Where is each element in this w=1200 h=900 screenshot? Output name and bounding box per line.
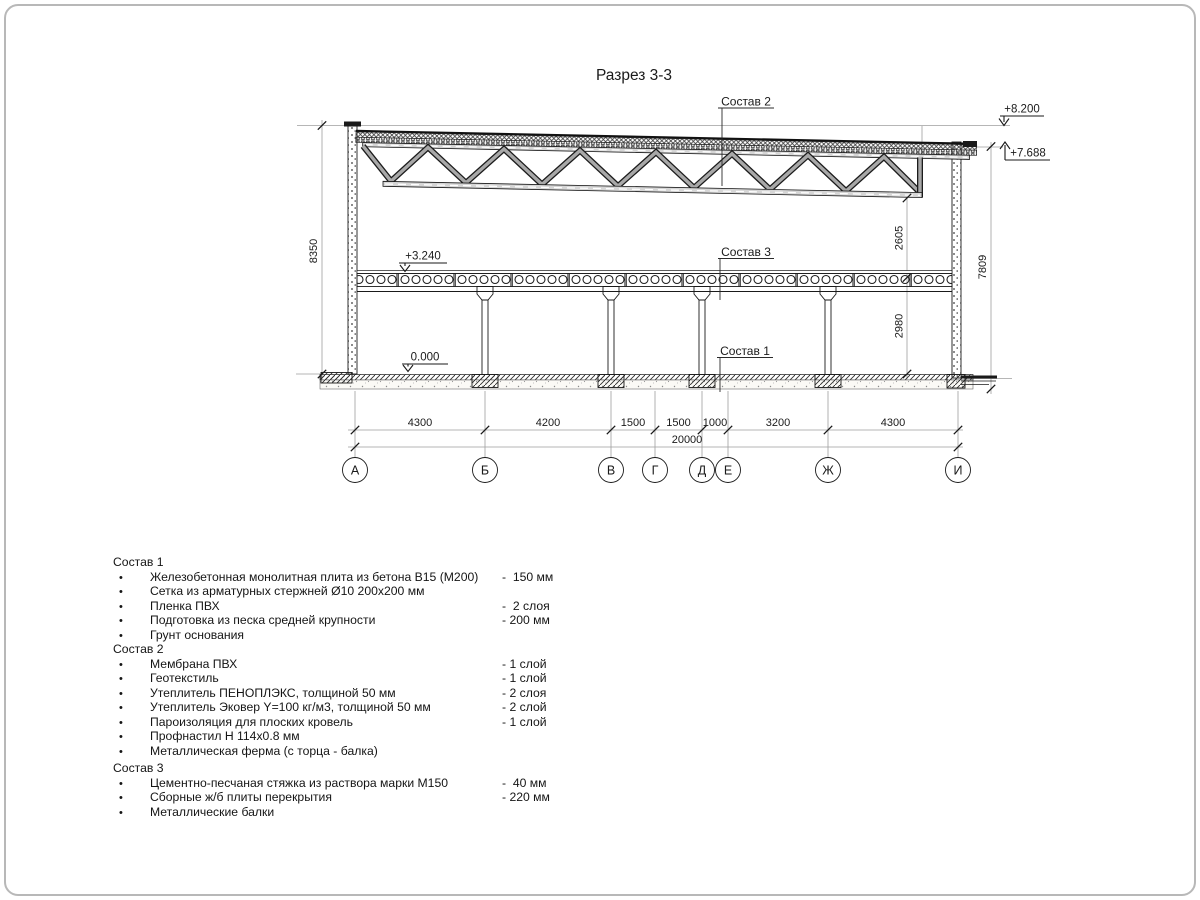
bullet-icon: •: [113, 777, 129, 792]
legend-item: •Профнастил Н 114x0.8 мм: [113, 729, 593, 744]
label-sostav-3: Состав 3: [721, 245, 771, 259]
left-parapet-cap: [344, 122, 361, 127]
legend-item: •Сборные ж/б плиты перекрытия- 220 мм: [113, 790, 593, 805]
legend-item: •Утеплитель Эковер Y=100 кг/м3, толщиной…: [113, 700, 593, 715]
legend-item: •Сетка из арматурных стержней Ø10 200x20…: [113, 584, 593, 599]
axis-d: Д: [698, 464, 707, 478]
axis-e: Е: [724, 464, 732, 478]
elevation-floor: +3.240: [405, 251, 441, 263]
bullet-icon: •: [113, 730, 129, 745]
bullet-icon: •: [113, 701, 129, 716]
elevation-ground: 0.000: [411, 352, 440, 364]
legend-item: •Пленка ПВХ- 2 слоя: [113, 599, 593, 614]
axis-i: И: [954, 464, 963, 478]
dim-3200: 3200: [766, 417, 790, 429]
axis-b: Б: [481, 464, 489, 478]
axis-g: Г: [652, 464, 659, 478]
bullet-icon: •: [113, 672, 129, 687]
bullet-icon: •: [113, 745, 129, 760]
legend-item: •Металлические балки: [113, 805, 593, 820]
bullet-icon: •: [113, 791, 129, 806]
legend-item: •Пароизоляция для плоских кровель- 1 сло…: [113, 715, 593, 730]
bullet-icon: •: [113, 687, 129, 702]
legend-item: •Мембрана ПВХ- 1 слой: [113, 657, 593, 672]
dim-2605: 2605: [894, 226, 906, 250]
dim-1500-b: 1500: [666, 417, 690, 429]
sheet: Разрез 3-3: [0, 0, 1200, 900]
horizontal-dimensions: 4300 4200 1500 1500 1000 3200 4300 20000: [408, 417, 905, 446]
bullet-icon: •: [113, 629, 129, 644]
floor-slab: [357, 271, 952, 292]
ground-slab: [320, 375, 973, 390]
composition-legend: Состав 1 •Железобетонная монолитная плит…: [113, 555, 593, 819]
legend-item: •Грунт основания: [113, 628, 593, 643]
elevation-parapet: +8.200: [1004, 104, 1040, 116]
dim-4300-left: 4300: [408, 417, 432, 429]
dim-4300-right: 4300: [881, 417, 905, 429]
dim-total-20000: 20000: [672, 434, 703, 446]
dim-1500-a: 1500: [621, 417, 645, 429]
elevation-roof: +7.688: [1010, 148, 1046, 160]
bullet-icon: •: [113, 658, 129, 673]
bullet-icon: •: [113, 806, 129, 821]
legend-item: •Геотекстиль- 1 слой: [113, 671, 593, 686]
legend-item: •Железобетонная монолитная плита из бето…: [113, 570, 593, 585]
legend-item: •Металлическая ферма (с торца - балка): [113, 744, 593, 759]
bullet-icon: •: [113, 716, 129, 731]
left-wall: [348, 125, 357, 374]
dim-2980: 2980: [894, 314, 906, 338]
dim-8350: 8350: [308, 239, 320, 263]
legend-heading-1: Состав 1: [113, 555, 593, 570]
bullet-icon: •: [113, 600, 129, 615]
right-wall: [952, 142, 961, 378]
legend-heading-3: Состав 3: [113, 761, 593, 776]
drawing-title: Разрез 3-3: [596, 67, 672, 84]
axis-v: В: [607, 464, 615, 478]
legend-item: •Утеплитель ПЕНОПЛЭКС, толщиной 50 мм- 2…: [113, 686, 593, 701]
columns: [477, 287, 836, 375]
dim-4200: 4200: [536, 417, 560, 429]
legend-heading-2: Состав 2: [113, 642, 593, 657]
axis-zh: Ж: [822, 464, 834, 478]
bullet-icon: •: [113, 614, 129, 629]
label-sostav-1: Состав 1: [720, 344, 770, 358]
axis-a: А: [351, 464, 360, 478]
axis-bubbles: А Б В Г Д Е Ж И: [343, 458, 971, 483]
bullet-icon: •: [113, 585, 129, 600]
roof-edge-cap: [963, 141, 977, 147]
legend-item: •Подготовка из песка средней крупности- …: [113, 613, 593, 628]
label-sostav-2: Состав 2: [721, 95, 771, 109]
legend-item: •Цементно-песчаная стяжка из раствора ма…: [113, 776, 593, 791]
dim-7809: 7809: [977, 255, 989, 279]
dim-1000: 1000: [703, 417, 727, 429]
bullet-icon: •: [113, 571, 129, 586]
